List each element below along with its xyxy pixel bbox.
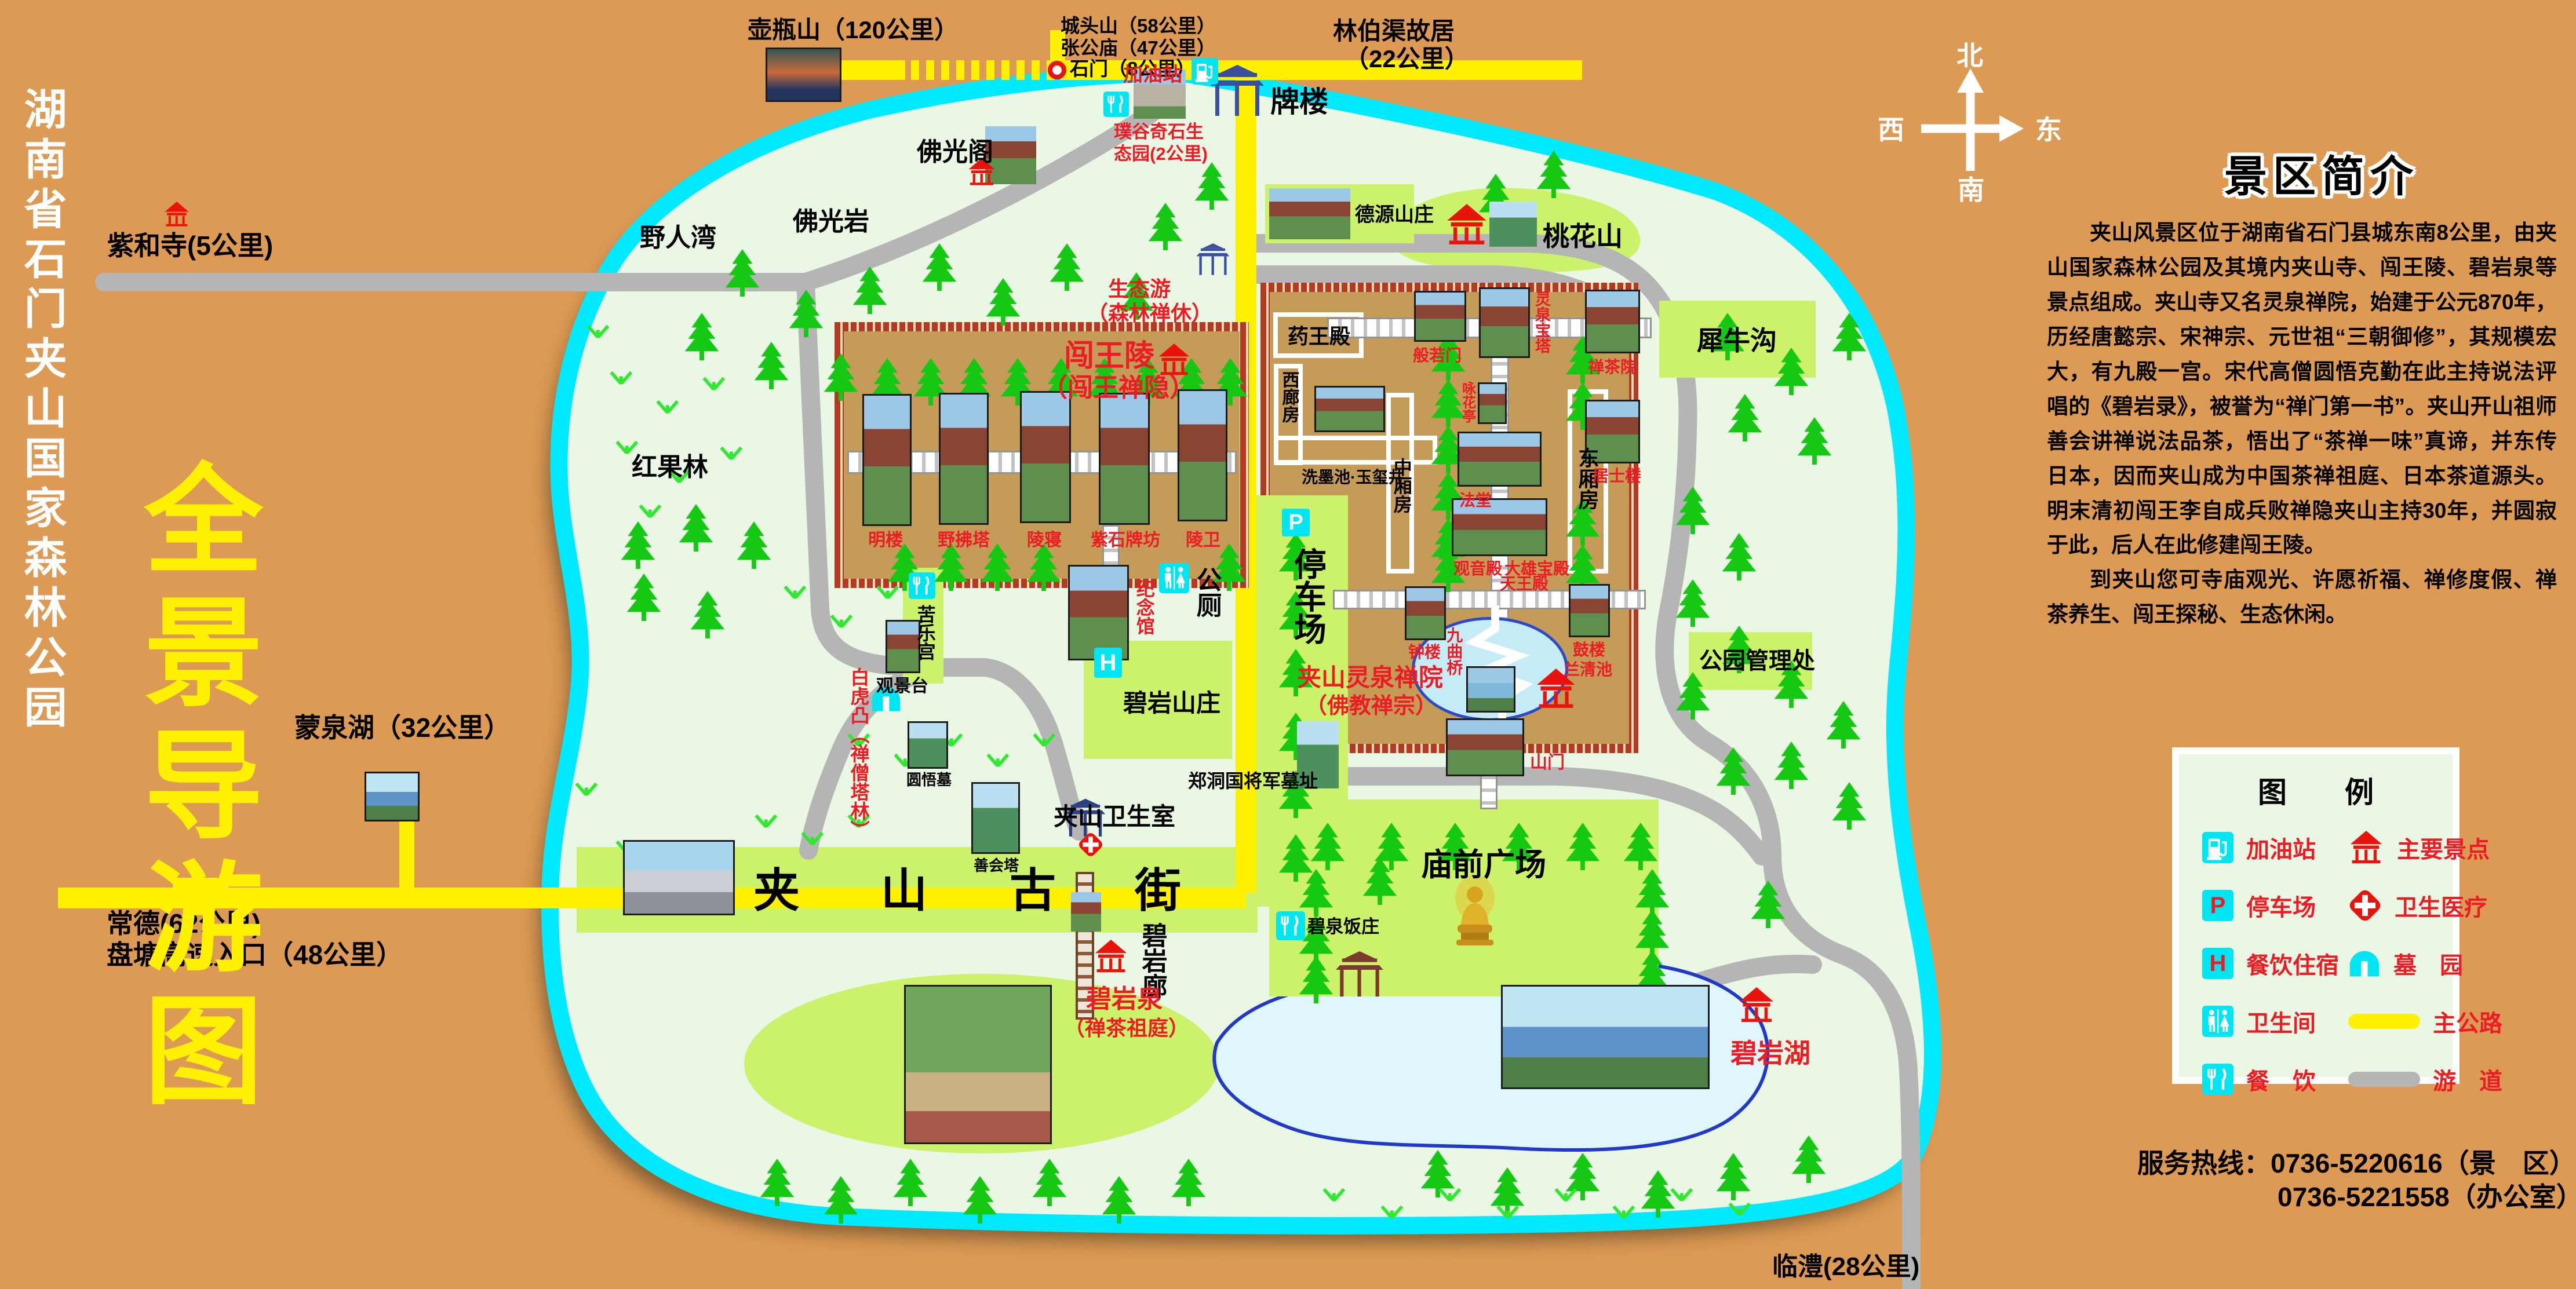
label-yuanwumu: 圆悟墓: [906, 772, 952, 789]
label-zhonglou: 钟楼: [1408, 643, 1441, 662]
photo-lingquanbaota: [1479, 287, 1530, 358]
label-foguangyan: 佛光岩: [793, 207, 869, 237]
photo-taohuashan: [1489, 202, 1537, 247]
label-biquanfanzhuang: 碧泉饭庄: [1307, 916, 1379, 937]
photo-chanchayuan: [1585, 290, 1640, 353]
legend-label: 加油站: [2246, 831, 2316, 864]
label-mengquanhu: 蒙泉湖（32公里）: [294, 713, 511, 743]
photo-jinianguan: [1068, 565, 1129, 660]
label-foguangge: 佛光阁: [917, 138, 993, 167]
gas-station-icon: [2202, 832, 2233, 863]
label-jiuquqiao: 九曲桥: [1444, 627, 1463, 675]
photo-zhonglou: [1405, 586, 1446, 640]
hotel-h-icon: H: [1094, 648, 1122, 678]
label-gujie-3: 古: [1010, 864, 1056, 918]
label-gongce: 公厕: [1192, 567, 1221, 618]
photo-deyuan: [1269, 188, 1350, 239]
dining-icon: [2202, 1064, 2233, 1095]
label-shengtaiyou-1: 生态游: [1108, 277, 1171, 301]
label-weishengshi: 夹山卫生室: [1054, 803, 1175, 831]
label-pailou: 牌楼: [1270, 86, 1328, 119]
biquanfanzhuang-food-icon: [1276, 910, 1305, 942]
label-biyanshanzhuang: 碧岩山庄: [1123, 689, 1220, 717]
label-linboqu-1: 林伯渠故居: [1333, 17, 1455, 45]
buddha-statue: [1446, 875, 1504, 963]
label-xiniugou: 犀牛沟: [1697, 326, 1777, 356]
clinic-cross-icon: [1078, 832, 1103, 857]
intro-paragraph-2: 到夹山您可寺庙观光、许愿祈福、禅修度假、禅茶养生、闯王探秘、生态休闲。: [2047, 563, 2557, 632]
label-minglou: 明楼: [868, 531, 903, 551]
label-gujie-2: 山: [881, 864, 927, 918]
compass: 北 西 东 南: [1912, 41, 2028, 203]
photo-yonghuating: [1478, 382, 1507, 424]
hotel-h-icon: H: [2202, 948, 2233, 979]
trail-swatch: [2348, 1072, 2420, 1087]
label-yonghuating: 咏花亭: [1459, 381, 1475, 423]
legend-item-trail: 游 道: [2348, 1062, 2502, 1096]
legend-item-hotel: H 餐饮住宿: [2202, 947, 2348, 980]
photo-shanhuita: [971, 782, 1020, 854]
label-zihesi: 紫和寺(5公里): [107, 231, 273, 261]
legend-label: 主公路: [2433, 1005, 2502, 1038]
label-tianwangdian: 天王殿: [1500, 575, 1548, 593]
lq-title-2: （佛教禅宗）: [1305, 694, 1437, 720]
photo-lingqin: [1020, 391, 1071, 523]
photo-biyanquan-crowd: [904, 985, 1052, 1144]
intro-title: 景区简介: [2224, 152, 2419, 201]
label-gulou: 鼓楼: [1573, 641, 1605, 659]
lq-title-1: 夹山灵泉禅院: [1297, 664, 1443, 692]
major-spot-icon: [2348, 831, 2384, 864]
label-lingqin: 陵寝: [1027, 531, 1062, 551]
legend-label: 卫生医疗: [2395, 889, 2487, 922]
label-kulegong: 苦乐宫: [914, 605, 936, 660]
legend-item-gas: 加油站: [2202, 831, 2348, 864]
label-lingwei: 陵卫: [1186, 531, 1220, 551]
photo-pond-pavilion: [1466, 666, 1515, 713]
park-name-vertical: 湖南省石门夹山国家森林公园: [17, 87, 67, 735]
spot-icon-taohuashan: [1446, 202, 1488, 248]
spot-icon-zihesi: [164, 200, 190, 229]
label-zhanggong: 张公庙（47公里）: [1061, 37, 1216, 59]
legend-item-main-road: 主公路: [2348, 1005, 2502, 1038]
label-gujie-1: 夹: [753, 864, 800, 918]
kulegong-food-icon: [909, 572, 935, 599]
main-road-swatch: [2348, 1014, 2420, 1029]
legend-label: 游 道: [2433, 1062, 2502, 1096]
label-baihutu: 白虎凸（禅僧塔林）: [847, 667, 869, 839]
cemetery-icon: [2348, 949, 2381, 978]
label-linboqu-2: （22公里）: [1345, 45, 1469, 73]
miaoqian-paifang-icon: [1327, 951, 1392, 999]
label-hongguolin: 红果林: [632, 453, 708, 483]
label-tingchechang: 停车场: [1289, 547, 1326, 645]
legend-item-parking: P 停车场: [2202, 889, 2348, 922]
compass-cross-icon: [1912, 64, 2028, 180]
parking-p-icon: P: [2202, 890, 2233, 921]
label-boruomen: 般若门: [1413, 346, 1462, 365]
label-deyuan: 德源山庄: [1355, 204, 1434, 227]
pugu-food-icon: [1103, 92, 1129, 117]
label-jinianguan: 纪念馆: [1134, 579, 1155, 635]
photo-mengquanhu: [365, 772, 420, 821]
label-pugu-2: 态园(2公里): [1114, 144, 1208, 165]
label-yaowangdian: 药王殿: [1288, 324, 1350, 348]
intro-body: 夹山风景区位于湖南省石门县城东南8公里，由夹山国家森林公园及其境内夹山寺、闯王陵…: [2047, 216, 2557, 632]
label-jushilou: 居士楼: [1593, 467, 1641, 485]
label-guanjingtai: 观景台: [876, 677, 928, 697]
medical-cross-icon: [2348, 889, 2382, 922]
shimen-ring-icon: [1048, 61, 1066, 79]
legend-label: 墓 园: [2393, 947, 2463, 980]
hotline-line-2: 0736-5221558（办公室）: [2278, 1182, 2576, 1213]
label-hupingshan: 壶瓶山（120公里）: [748, 16, 959, 44]
parking-p-icon: P: [1282, 509, 1310, 536]
label-biyanquan-2: （禅茶祖庭）: [1064, 1016, 1189, 1040]
label-lingquanbaota: 灵泉宝塔: [1532, 291, 1550, 353]
compass-east: 东: [2035, 115, 2062, 145]
label-chengtou: 城头山（58公里）: [1061, 15, 1216, 37]
photo-biyanhu: [1501, 985, 1710, 1089]
gongce-wc-icon: [1159, 563, 1189, 593]
label-guanyindian: 观音殿: [1453, 560, 1502, 578]
label-gujie-4: 街: [1135, 864, 1181, 918]
label-zhengdongguo: 郑洞国将军墓址: [1188, 771, 1318, 792]
photo-fatang: [1458, 432, 1542, 487]
compass-west: 西: [1878, 115, 1904, 145]
label-lanqingchi: 兰清池: [1564, 660, 1612, 679]
photo-gulou: [1569, 584, 1610, 637]
legend-label: 停车场: [2246, 889, 2316, 922]
label-zhongxiangfang: 中厢房: [1391, 458, 1412, 513]
gas-station-icon: [1192, 58, 1218, 85]
cwl-title-2: （闯王禅隐）: [1042, 374, 1195, 403]
cwl-title-1: 闯王陵: [1064, 339, 1154, 374]
photo-boruomen: [1414, 291, 1466, 342]
map-title-vertical: 全景导游图: [125, 458, 261, 1121]
photo-ximochi: [1314, 386, 1385, 432]
hotline-line-1: 服务热线：0736-5220616（景 区）: [2137, 1148, 2576, 1179]
legend-title: 图 例: [2179, 769, 2453, 811]
photo-lingwei: [1178, 389, 1227, 521]
label-yefuta: 野拂塔: [938, 531, 990, 551]
photo-hupingshan: [766, 48, 841, 102]
tour-map-poster: P H 壶瓶山（120公里） 城头山（58公里） 张公庙（47公里） 石门（8公…: [0, 0, 2576, 1289]
legend-item-cemetery: 墓 园: [2348, 947, 2502, 980]
senlin-chanxiu-gate-icon: [1195, 243, 1231, 278]
label-linli: 临澧(28公里): [1772, 1253, 1919, 1282]
photo-shanmen: [1446, 718, 1524, 776]
label-guanlichu: 公园管理处: [1699, 648, 1815, 674]
label-taohuashan: 桃花山: [1543, 221, 1623, 252]
photo-yefuta: [939, 393, 989, 525]
photo-gujie-street: [623, 840, 735, 915]
label-ximochi: 洗墨池·玉玺井: [1302, 468, 1404, 487]
label-gas: 加油站: [1123, 64, 1182, 86]
label-biyanquan-1: 碧岩泉: [1086, 985, 1163, 1014]
label-zishipaifang: 紫石牌坊: [1091, 531, 1160, 551]
legend-item-medical: 卫生医疗: [2348, 889, 2502, 922]
label-shanmen: 山门: [1530, 753, 1565, 773]
label-xilangfang: 西廊房: [1278, 371, 1299, 423]
label-pugu-1: 璞谷奇石生: [1114, 122, 1204, 143]
legend-label: 餐饮住宿: [2246, 947, 2339, 980]
toilet-icon: [2202, 1006, 2233, 1037]
spot-icon-biyanquan: [1094, 937, 1128, 976]
compass-south: 南: [1958, 175, 1984, 206]
label-shengtaiyou-2: （森林禅休）: [1087, 301, 1212, 325]
legend-label: 主要景点: [2397, 831, 2490, 864]
legend-item-toilet: 卫生间: [2202, 1005, 2348, 1038]
label-chanchayuan: 禅茶院: [1588, 358, 1637, 377]
intro-paragraph-1: 夹山风景区位于湖南省石门县城东南8公里，由夹山国家森林公园及其境内夹山寺、闯王陵…: [2047, 216, 2557, 563]
compass-north: 北: [1956, 41, 1983, 71]
legend-label: 餐 饮: [2246, 1062, 2316, 1096]
spot-icon-biyanhu: [1739, 985, 1775, 1025]
photo-zishipaifang: [1099, 393, 1150, 525]
photo-minglou: [862, 394, 912, 526]
legend-item-spot: 主要景点: [2348, 831, 2502, 864]
legend-grid: 加油站 主要景点 P 停车场 卫生医疗 H 餐饮住宿 墓 园: [2179, 811, 2453, 1096]
legend-item-dining: 餐 饮: [2202, 1062, 2348, 1096]
photo-corridor-head: [1071, 892, 1101, 932]
label-yerenwan: 野人湾: [640, 224, 716, 253]
label-fatang: 法堂: [1459, 491, 1492, 510]
label-biyanhu: 碧岩湖: [1730, 1038, 1810, 1069]
label-miaoqian: 庙前广场: [1421, 847, 1546, 883]
legend-label: 卫生间: [2246, 1005, 2316, 1038]
legend-panel: 图 例 加油站 主要景点 P 停车场 卫生医疗 H 餐饮住宿: [2172, 747, 2460, 1084]
photo-yuanwumu: [908, 721, 948, 769]
